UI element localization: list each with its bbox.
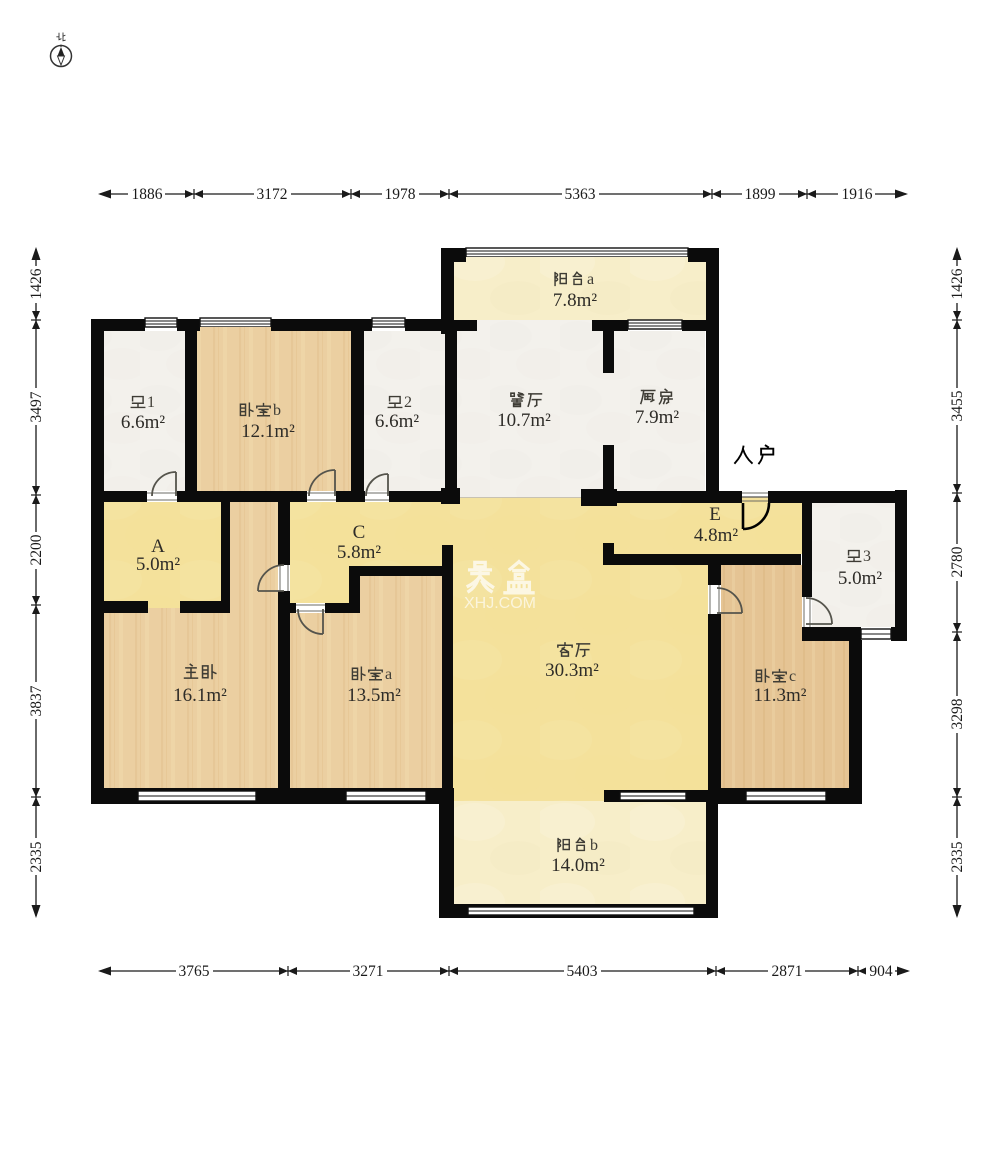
svg-text:b: b [590, 837, 598, 854]
svg-text:1: 1 [147, 394, 155, 411]
svg-text:a: a [587, 271, 594, 288]
svg-text:3271: 3271 [353, 963, 384, 980]
svg-text:a: a [385, 666, 392, 683]
svg-text:3: 3 [863, 548, 871, 565]
svg-text:1899: 1899 [745, 186, 776, 203]
svg-text:1916: 1916 [842, 186, 873, 203]
svg-text:10.7m²: 10.7m² [497, 410, 551, 431]
svg-text:4.8m²: 4.8m² [694, 525, 739, 546]
svg-text:c: c [789, 668, 796, 685]
svg-text:3455: 3455 [949, 390, 966, 421]
svg-text:2780: 2780 [949, 546, 966, 577]
svg-text:3172: 3172 [257, 186, 288, 203]
svg-text:b: b [273, 402, 281, 419]
svg-text:2871: 2871 [772, 963, 803, 980]
svg-text:3837: 3837 [28, 685, 45, 716]
svg-text:16.1m²: 16.1m² [173, 685, 227, 706]
svg-text:14.0m²: 14.0m² [551, 855, 605, 876]
svg-text:2335: 2335 [28, 841, 45, 872]
svg-text:6.6m²: 6.6m² [375, 411, 420, 432]
svg-text:5363: 5363 [565, 186, 596, 203]
svg-text:5.0m²: 5.0m² [838, 568, 883, 589]
svg-text:3298: 3298 [949, 698, 966, 729]
svg-text:1978: 1978 [385, 186, 416, 203]
svg-text:5403: 5403 [567, 963, 598, 980]
svg-text:7.9m²: 7.9m² [635, 407, 680, 428]
svg-text:E: E [709, 504, 721, 525]
svg-text:3497: 3497 [28, 391, 45, 422]
svg-text:12.1m²: 12.1m² [241, 421, 295, 442]
svg-text:5.8m²: 5.8m² [337, 542, 382, 563]
svg-text:1886: 1886 [132, 186, 163, 203]
svg-text:30.3m²: 30.3m² [545, 660, 599, 681]
svg-text:XHJ.COM: XHJ.COM [464, 595, 536, 612]
svg-text:1426: 1426 [949, 268, 966, 299]
svg-text:7.8m²: 7.8m² [553, 290, 598, 311]
svg-text:11.3m²: 11.3m² [753, 685, 806, 706]
svg-text:13.5m²: 13.5m² [347, 685, 401, 706]
svg-text:5.0m²: 5.0m² [136, 554, 181, 575]
svg-text:2335: 2335 [949, 841, 966, 872]
svg-text:6.6m²: 6.6m² [121, 412, 166, 433]
svg-text:2: 2 [404, 394, 412, 411]
svg-text:3765: 3765 [179, 963, 210, 980]
svg-text:C: C [353, 522, 366, 543]
svg-text:904: 904 [869, 963, 893, 980]
svg-text:2200: 2200 [28, 534, 45, 565]
svg-text:1426: 1426 [28, 268, 45, 299]
